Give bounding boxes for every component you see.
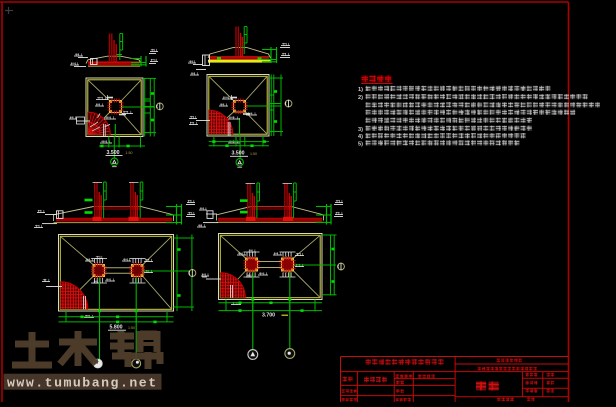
svg-text:4): 4) — [358, 134, 363, 140]
svg-text:3.700: 3.700 — [262, 312, 275, 318]
svg-text:1): 1) — [358, 87, 363, 93]
svg-text:5): 5) — [358, 141, 363, 147]
svg-text:1:50: 1:50 — [128, 326, 135, 330]
svg-text:www.tumubang.net: www.tumubang.net — [7, 376, 158, 391]
svg-text:3): 3) — [358, 127, 363, 133]
svg-text:2): 2) — [358, 95, 363, 101]
svg-text:1:50: 1:50 — [250, 152, 257, 156]
svg-text:3.500: 3.500 — [232, 151, 245, 157]
svg-text:5.800: 5.800 — [110, 325, 123, 331]
svg-text:3.500: 3.500 — [107, 150, 120, 156]
svg-text:1:50: 1:50 — [126, 151, 133, 155]
